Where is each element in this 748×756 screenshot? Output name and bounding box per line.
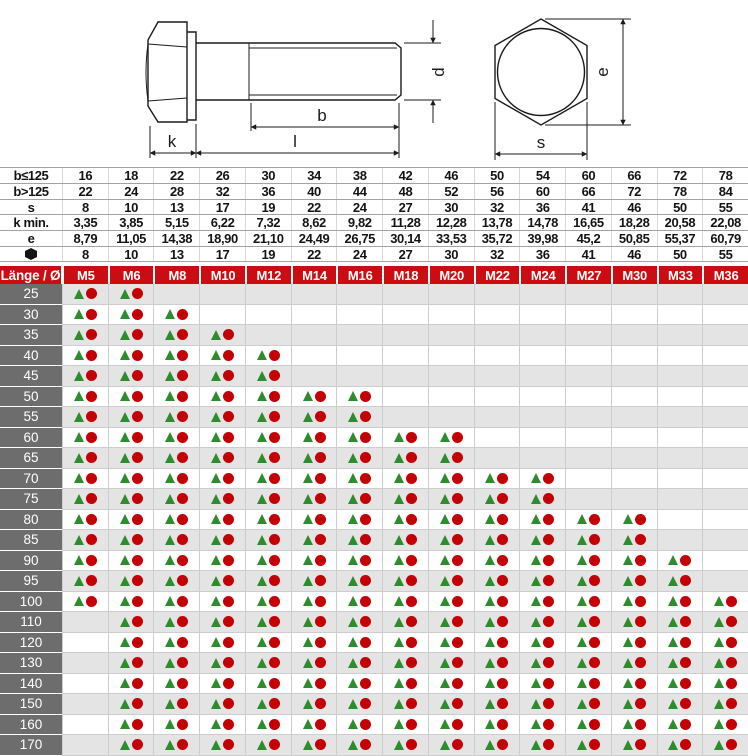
circle-icon <box>543 514 554 525</box>
dimension-value-cell: 24,49 <box>291 231 337 246</box>
dimension-value-cell: 12,28 <box>428 215 474 230</box>
availability-cell <box>108 735 154 756</box>
dimension-value-cell: 46 <box>611 200 657 215</box>
matrix-row: 40 <box>0 346 748 367</box>
dimension-value-cell: 13 <box>153 247 199 261</box>
circle-icon <box>543 596 554 607</box>
triangle-icon <box>303 719 313 729</box>
circle-icon <box>269 637 280 648</box>
row-length-label: 130 <box>0 653 62 674</box>
matrix-row: 55 <box>0 407 748 428</box>
availability-cell <box>702 694 748 715</box>
circle-icon <box>132 596 143 607</box>
availability-cell <box>336 674 382 695</box>
triangle-icon <box>211 576 221 586</box>
dimension-value-cell: 22 <box>291 247 337 261</box>
triangle-icon <box>440 678 450 688</box>
availability-cell <box>199 510 245 531</box>
availability-cell <box>474 284 520 305</box>
triangle-icon <box>623 658 633 668</box>
triangle-icon <box>303 658 313 668</box>
triangle-icon <box>303 555 313 565</box>
triangle-icon <box>348 473 358 483</box>
availability-cell <box>428 346 474 367</box>
availability-cell <box>702 366 748 387</box>
availability-cell <box>336 469 382 490</box>
triangle-icon <box>485 555 495 565</box>
matrix-row: 110 <box>0 612 748 633</box>
circle-icon <box>497 616 508 627</box>
triangle-icon <box>394 453 404 463</box>
triangle-icon <box>440 617 450 627</box>
dimension-value-cell: 3,85 <box>108 215 154 230</box>
circle-icon <box>269 370 280 381</box>
dimension-value-cell: 40 <box>291 184 337 199</box>
availability-cell <box>702 489 748 510</box>
triangle-icon <box>348 637 358 647</box>
availability-cell <box>702 612 748 633</box>
dimension-value-cell: 22 <box>153 168 199 183</box>
triangle-icon <box>211 637 221 647</box>
triangle-icon <box>623 637 633 647</box>
availability-cell <box>565 735 611 756</box>
dimension-value-cell: 8,62 <box>291 215 337 230</box>
triangle-icon <box>394 678 404 688</box>
triangle-icon <box>165 699 175 709</box>
availability-cell <box>702 305 748 326</box>
availability-cell <box>428 735 474 756</box>
circle-icon <box>680 698 691 709</box>
circle-icon <box>86 350 97 361</box>
circle-icon <box>543 719 554 730</box>
dimension-value-cell: 9,82 <box>336 215 382 230</box>
availability-cell <box>382 674 428 695</box>
dimension-value-cell: 11,28 <box>382 215 428 230</box>
triangle-icon <box>623 719 633 729</box>
availability-cell <box>108 305 154 326</box>
availability-cell <box>199 653 245 674</box>
availability-cell <box>62 428 108 449</box>
circle-icon <box>132 575 143 586</box>
availability-cell <box>382 510 428 531</box>
circle-icon <box>177 391 188 402</box>
availability-cell <box>474 735 520 756</box>
availability-cell <box>62 653 108 674</box>
matrix-row: 30 <box>0 305 748 326</box>
circle-icon <box>360 698 371 709</box>
triangle-icon <box>74 309 84 319</box>
triangle-icon <box>623 576 633 586</box>
availability-cell <box>62 469 108 490</box>
availability-cell <box>657 305 703 326</box>
circle-icon <box>589 719 600 730</box>
triangle-icon <box>485 576 495 586</box>
row-length-label: 170 <box>0 735 62 756</box>
dimension-value-cell: 30 <box>428 247 474 261</box>
availability-cell <box>657 551 703 572</box>
triangle-icon <box>577 617 587 627</box>
availability-cell <box>62 305 108 326</box>
triangle-icon <box>531 719 541 729</box>
availability-cell <box>657 571 703 592</box>
matrix-row: 100 <box>0 592 748 613</box>
matrix-column-header: M27 <box>565 266 611 284</box>
dimension-value-cell: 32 <box>474 200 520 215</box>
circle-icon <box>177 616 188 627</box>
circle-icon <box>452 432 463 443</box>
dimension-value-cell: 27 <box>382 200 428 215</box>
availability-cell <box>428 612 474 633</box>
triangle-icon <box>211 330 221 340</box>
triangle-icon <box>531 678 541 688</box>
circle-icon <box>452 596 463 607</box>
availability-cell <box>565 346 611 367</box>
triangle-icon <box>668 637 678 647</box>
circle-icon <box>452 493 463 504</box>
triangle-icon <box>211 391 221 401</box>
dimension-value-cell: 24 <box>336 200 382 215</box>
availability-cell <box>657 325 703 346</box>
availability-cell <box>199 448 245 469</box>
circle-icon <box>132 719 143 730</box>
circle-icon <box>269 678 280 689</box>
availability-cell <box>62 735 108 756</box>
availability-cell <box>519 489 565 510</box>
circle-icon <box>543 678 554 689</box>
dimension-value-cell: 10 <box>108 247 154 261</box>
triangle-icon <box>348 453 358 463</box>
row-length-label: 110 <box>0 612 62 633</box>
triangle-icon <box>211 514 221 524</box>
dimension-value-cell: 48 <box>382 184 428 199</box>
availability-cell <box>336 510 382 531</box>
availability-cell <box>382 387 428 408</box>
circle-icon <box>223 698 234 709</box>
dimension-value-cell: 46 <box>611 247 657 261</box>
triangle-icon <box>165 617 175 627</box>
dimension-value-cell: 50 <box>657 247 703 261</box>
triangle-icon <box>394 719 404 729</box>
dimension-value-cell: 26,75 <box>336 231 382 246</box>
availability-cell <box>245 305 291 326</box>
circle-icon <box>497 698 508 709</box>
availability-cell <box>428 551 474 572</box>
circle-icon <box>86 452 97 463</box>
triangle-icon <box>303 596 313 606</box>
availability-cell <box>153 325 199 346</box>
circle-icon <box>406 452 417 463</box>
matrix-column-header: M6 <box>108 266 154 284</box>
availability-cell <box>428 592 474 613</box>
availability-cell <box>657 612 703 633</box>
availability-cell <box>199 530 245 551</box>
triangle-icon <box>623 555 633 565</box>
availability-cell <box>382 448 428 469</box>
circle-icon <box>543 473 554 484</box>
availability-cell <box>428 715 474 736</box>
circle-icon <box>406 575 417 586</box>
triangle-icon <box>394 535 404 545</box>
dimension-row-label: e <box>0 231 62 246</box>
availability-cell <box>382 407 428 428</box>
circle-icon <box>315 678 326 689</box>
matrix-column-header: M24 <box>519 266 565 284</box>
availability-cell <box>474 530 520 551</box>
availability-cell <box>245 284 291 305</box>
matrix-row: 80 <box>0 510 748 531</box>
triangle-icon <box>577 514 587 524</box>
availability-cell <box>153 551 199 572</box>
availability-cell <box>336 284 382 305</box>
circle-icon <box>360 432 371 443</box>
dimension-value-cell: 8 <box>62 247 108 261</box>
availability-cell <box>199 469 245 490</box>
availability-cell <box>199 284 245 305</box>
availability-cell <box>474 448 520 469</box>
circle-icon <box>360 391 371 402</box>
triangle-icon <box>165 453 175 463</box>
circle-icon <box>177 698 188 709</box>
matrix-corner-label: Länge / Ø <box>0 266 62 284</box>
circle-icon <box>360 452 371 463</box>
availability-cell <box>519 387 565 408</box>
circle-icon <box>223 473 234 484</box>
triangle-icon <box>531 740 541 750</box>
triangle-icon <box>531 637 541 647</box>
circle-icon <box>269 575 280 586</box>
dimension-table-row: b≤125161822263034384246505460667278 <box>0 167 748 183</box>
circle-icon <box>635 616 646 627</box>
matrix-row: 50 <box>0 387 748 408</box>
dimension-value-cell: 16 <box>62 168 108 183</box>
circle-icon <box>406 473 417 484</box>
availability-cell <box>62 489 108 510</box>
triangle-icon <box>440 740 450 750</box>
row-length-label: 40 <box>0 346 62 367</box>
availability-cell <box>474 715 520 736</box>
availability-cell <box>657 694 703 715</box>
availability-cell <box>245 366 291 387</box>
availability-cell <box>153 489 199 510</box>
circle-icon <box>269 719 280 730</box>
triangle-icon <box>714 658 724 668</box>
triangle-icon <box>440 658 450 668</box>
bolt-technical-drawing: b l k d e <box>0 0 748 167</box>
dimension-table-row: k min.3,353,855,156,227,328,629,8211,281… <box>0 214 748 230</box>
circle-icon <box>589 739 600 750</box>
circle-icon <box>543 739 554 750</box>
dimension-value-cell: 66 <box>565 184 611 199</box>
circle-icon <box>635 698 646 709</box>
circle-icon <box>177 452 188 463</box>
availability-cell <box>153 674 199 695</box>
circle-icon <box>223 370 234 381</box>
availability-cell <box>108 653 154 674</box>
availability-cell <box>336 530 382 551</box>
row-length-label: 140 <box>0 674 62 695</box>
triangle-icon <box>120 432 130 442</box>
circle-icon <box>497 575 508 586</box>
triangle-icon <box>440 555 450 565</box>
triangle-icon <box>165 740 175 750</box>
availability-cell <box>565 571 611 592</box>
availability-cell <box>108 674 154 695</box>
triangle-icon <box>440 699 450 709</box>
dimension-value-cell: 3,35 <box>62 215 108 230</box>
availability-cell <box>519 305 565 326</box>
triangle-icon <box>211 596 221 606</box>
availability-cell <box>702 735 748 756</box>
availability-cell <box>199 674 245 695</box>
availability-cell <box>291 469 337 490</box>
dimension-table: b≤125161822263034384246505460667278b>125… <box>0 167 748 262</box>
dimension-value-cell: 33,53 <box>428 231 474 246</box>
matrix-header-row: Länge / Ø M5M6M8M10M12M14M16M18M20M22M24… <box>0 266 748 284</box>
circle-icon <box>132 350 143 361</box>
circle-icon <box>452 719 463 730</box>
circle-icon <box>86 514 97 525</box>
triangle-icon <box>165 371 175 381</box>
triangle-icon <box>165 412 175 422</box>
dimension-value-cell: 42 <box>382 168 428 183</box>
availability-cell <box>336 715 382 736</box>
triangle-icon <box>303 412 313 422</box>
dimension-value-cell: 34 <box>291 168 337 183</box>
availability-cell <box>565 428 611 449</box>
availability-cell <box>199 735 245 756</box>
dimension-value-cell: 22,08 <box>702 215 748 230</box>
circle-icon <box>406 678 417 689</box>
matrix-column-header: M16 <box>336 266 382 284</box>
triangle-icon <box>623 596 633 606</box>
circle-icon <box>360 596 371 607</box>
triangle-icon <box>485 596 495 606</box>
triangle-icon <box>440 596 450 606</box>
circle-icon <box>360 575 371 586</box>
dimension-value-cell: 50 <box>474 168 520 183</box>
circle-icon <box>635 637 646 648</box>
matrix-row: 95 <box>0 571 748 592</box>
availability-cell <box>565 469 611 490</box>
availability-cell <box>245 510 291 531</box>
availability-cell <box>108 284 154 305</box>
dimension-value-cell: 50 <box>657 200 703 215</box>
circle-icon <box>452 657 463 668</box>
triangle-icon <box>211 350 221 360</box>
circle-icon <box>497 657 508 668</box>
dimension-row-label: k min. <box>0 215 62 230</box>
dim-label-l: l <box>293 132 297 151</box>
circle-icon <box>269 473 280 484</box>
circle-icon <box>360 493 371 504</box>
availability-cell <box>245 612 291 633</box>
circle-icon <box>86 575 97 586</box>
triangle-icon <box>668 596 678 606</box>
circle-icon <box>680 596 691 607</box>
availability-cell <box>428 428 474 449</box>
triangle-icon <box>120 371 130 381</box>
availability-cell <box>428 305 474 326</box>
circle-icon <box>497 637 508 648</box>
availability-cell <box>336 653 382 674</box>
availability-cell <box>382 694 428 715</box>
triangle-icon <box>74 514 84 524</box>
availability-cell <box>62 325 108 346</box>
dimension-table-row: 81013171922242730323641465055 <box>0 246 748 262</box>
availability-cell <box>382 428 428 449</box>
triangle-icon <box>165 535 175 545</box>
availability-cell <box>519 551 565 572</box>
circle-icon <box>86 391 97 402</box>
triangle-icon <box>577 637 587 647</box>
triangle-icon <box>120 740 130 750</box>
circle-icon <box>177 370 188 381</box>
availability-cell <box>611 592 657 613</box>
circle-icon <box>680 678 691 689</box>
dimension-value-cell: 30 <box>428 200 474 215</box>
availability-cell <box>336 305 382 326</box>
availability-cell <box>519 346 565 367</box>
circle-icon <box>132 555 143 566</box>
availability-cell <box>657 735 703 756</box>
triangle-icon <box>211 371 221 381</box>
availability-cell <box>474 366 520 387</box>
circle-icon <box>86 534 97 545</box>
availability-cell <box>474 469 520 490</box>
dimension-value-cell: 22 <box>62 184 108 199</box>
availability-cell <box>702 469 748 490</box>
matrix-column-header: M18 <box>382 266 428 284</box>
availability-cell <box>474 510 520 531</box>
triangle-icon <box>74 391 84 401</box>
availability-cell <box>108 469 154 490</box>
triangle-icon <box>531 555 541 565</box>
triangle-icon <box>577 740 587 750</box>
availability-cell <box>291 674 337 695</box>
availability-cell <box>474 428 520 449</box>
dimension-value-cell: 41 <box>565 200 611 215</box>
dimension-value-cell: 72 <box>611 184 657 199</box>
dimension-value-cell: 55,37 <box>657 231 703 246</box>
circle-icon <box>360 473 371 484</box>
availability-cell <box>199 387 245 408</box>
availability-cell <box>291 530 337 551</box>
triangle-icon <box>165 596 175 606</box>
availability-cell <box>657 530 703 551</box>
matrix-row: 150 <box>0 694 748 715</box>
dimension-value-cell: 56 <box>474 184 520 199</box>
triangle-icon <box>303 617 313 627</box>
availability-cell <box>565 592 611 613</box>
dimension-value-cell: 78 <box>702 168 748 183</box>
availability-cell <box>382 715 428 736</box>
triangle-icon <box>623 699 633 709</box>
availability-cell <box>108 571 154 592</box>
circle-icon <box>132 534 143 545</box>
dimension-value-cell: 32 <box>199 184 245 199</box>
triangle-icon <box>577 658 587 668</box>
triangle-icon <box>485 699 495 709</box>
availability-cell <box>199 633 245 654</box>
triangle-icon <box>714 740 724 750</box>
circle-icon <box>680 555 691 566</box>
availability-cell <box>291 284 337 305</box>
availability-cell <box>245 530 291 551</box>
availability-cell <box>657 510 703 531</box>
circle-icon <box>543 555 554 566</box>
availability-cell <box>291 489 337 510</box>
availability-cell <box>474 407 520 428</box>
